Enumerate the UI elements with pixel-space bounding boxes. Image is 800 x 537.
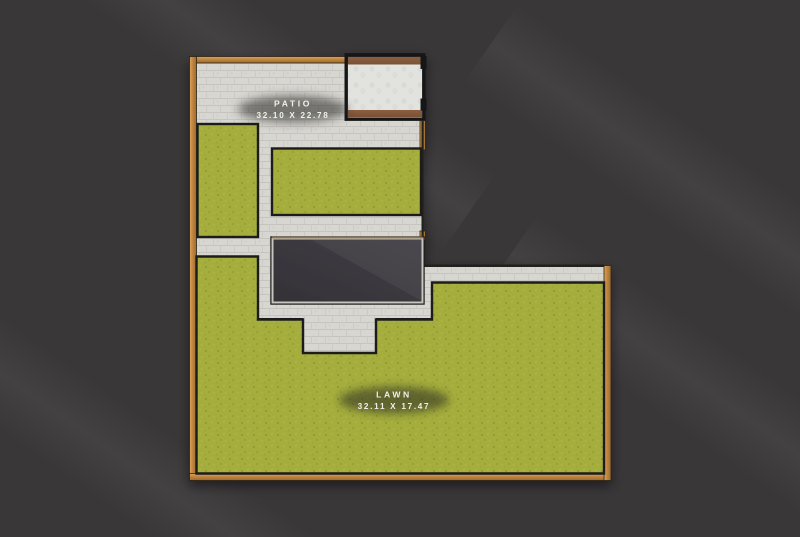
patio-label: PATIO 32.10 X 22.78 bbox=[238, 96, 348, 123]
shed-wall-bottom bbox=[348, 110, 422, 117]
plan-edge-line-strip-top bbox=[423, 264, 604, 267]
plan-body bbox=[190, 55, 612, 481]
patio-landing-step[interactable] bbox=[303, 316, 376, 354]
shed[interactable] bbox=[346, 55, 426, 119]
garden-bed-center[interactable] bbox=[272, 149, 421, 216]
shed-wall-top bbox=[348, 57, 422, 65]
house-footprint[interactable] bbox=[271, 237, 424, 304]
house-top-trim bbox=[272, 237, 423, 239]
patio-label-dimensions: 32.10 X 22.78 bbox=[256, 111, 329, 120]
scene-canvas: PATIO 32.10 X 22.78 LAWN 32.11 X 17.47 bbox=[0, 0, 800, 537]
patio-label-name: PATIO bbox=[274, 99, 312, 109]
garden-bed-left[interactable] bbox=[198, 124, 259, 237]
shed-door-jamb-upper bbox=[421, 56, 427, 69]
lawn-label: LAWN 32.11 X 17.47 bbox=[339, 387, 449, 414]
fence-top bbox=[190, 57, 348, 64]
patio-walkway-right[interactable] bbox=[423, 266, 604, 283]
lawn-label-name: LAWN bbox=[376, 390, 412, 400]
shed-floor[interactable] bbox=[348, 57, 422, 117]
landscape-plan: PATIO 32.10 X 22.78 LAWN 32.11 X 17.47 bbox=[0, 0, 800, 537]
shed-door-jamb-lower bbox=[421, 99, 427, 111]
lawn-label-dimensions: 32.11 X 17.47 bbox=[358, 402, 431, 411]
